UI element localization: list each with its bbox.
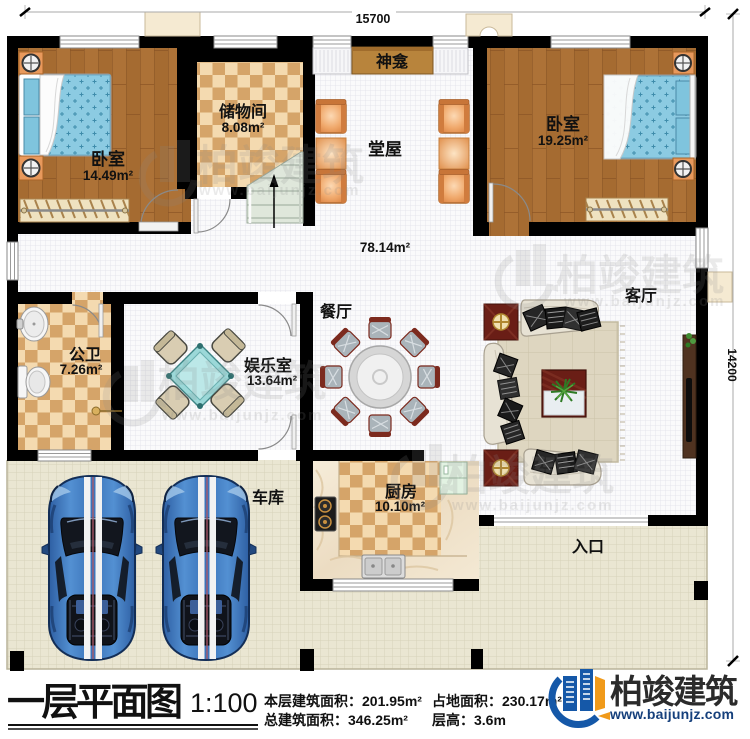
svg-text:层高：3.6m: 层高：3.6m <box>432 712 506 728</box>
svg-text:www.baijunjz.com: www.baijunjz.com <box>198 182 360 199</box>
svg-text:堂屋: 堂屋 <box>368 139 402 159</box>
svg-text:www.baijunjz.com: www.baijunjz.com <box>609 706 734 722</box>
svg-text:78.14m²: 78.14m² <box>360 240 411 255</box>
svg-text:14200: 14200 <box>725 348 739 382</box>
svg-text:柏竣建筑: 柏竣建筑 <box>610 673 738 710</box>
svg-text:占地面积：230.17m²: 占地面积：230.17m² <box>432 693 562 709</box>
svg-text:1:100: 1:100 <box>190 688 258 718</box>
svg-text:储物间: 储物间 <box>218 102 267 121</box>
svg-text:www.baijunjz.com: www.baijunjz.com <box>563 293 725 310</box>
svg-text:本层建筑面积：201.95m²: 本层建筑面积：201.95m² <box>264 693 422 709</box>
svg-text:车库: 车库 <box>252 488 284 507</box>
svg-text:柏竣建筑: 柏竣建筑 <box>446 452 614 499</box>
svg-text:柏竣建筑: 柏竣建筑 <box>158 358 326 405</box>
svg-text:卧室: 卧室 <box>546 114 580 134</box>
svg-text:7.26m²: 7.26m² <box>60 362 103 377</box>
svg-text:总建筑面积：346.25m²: 总建筑面积：346.25m² <box>264 712 408 728</box>
svg-text:15700: 15700 <box>356 12 391 26</box>
svg-text:柏竣建筑: 柏竣建筑 <box>556 252 724 299</box>
svg-text:8.08m²: 8.08m² <box>222 120 265 135</box>
svg-text:www.baijunjz.com: www.baijunjz.com <box>161 407 323 424</box>
svg-text:www.baijunjz.com: www.baijunjz.com <box>451 497 613 514</box>
svg-text:神龛: 神龛 <box>376 52 409 71</box>
svg-text:餐厅: 餐厅 <box>319 302 352 321</box>
svg-text:19.25m²: 19.25m² <box>538 133 589 148</box>
svg-text:一层平面图: 一层平面图 <box>7 682 181 724</box>
svg-text:14.49m²: 14.49m² <box>83 168 134 183</box>
svg-text:卧室: 卧室 <box>91 149 125 169</box>
svg-text:入口: 入口 <box>572 538 604 556</box>
